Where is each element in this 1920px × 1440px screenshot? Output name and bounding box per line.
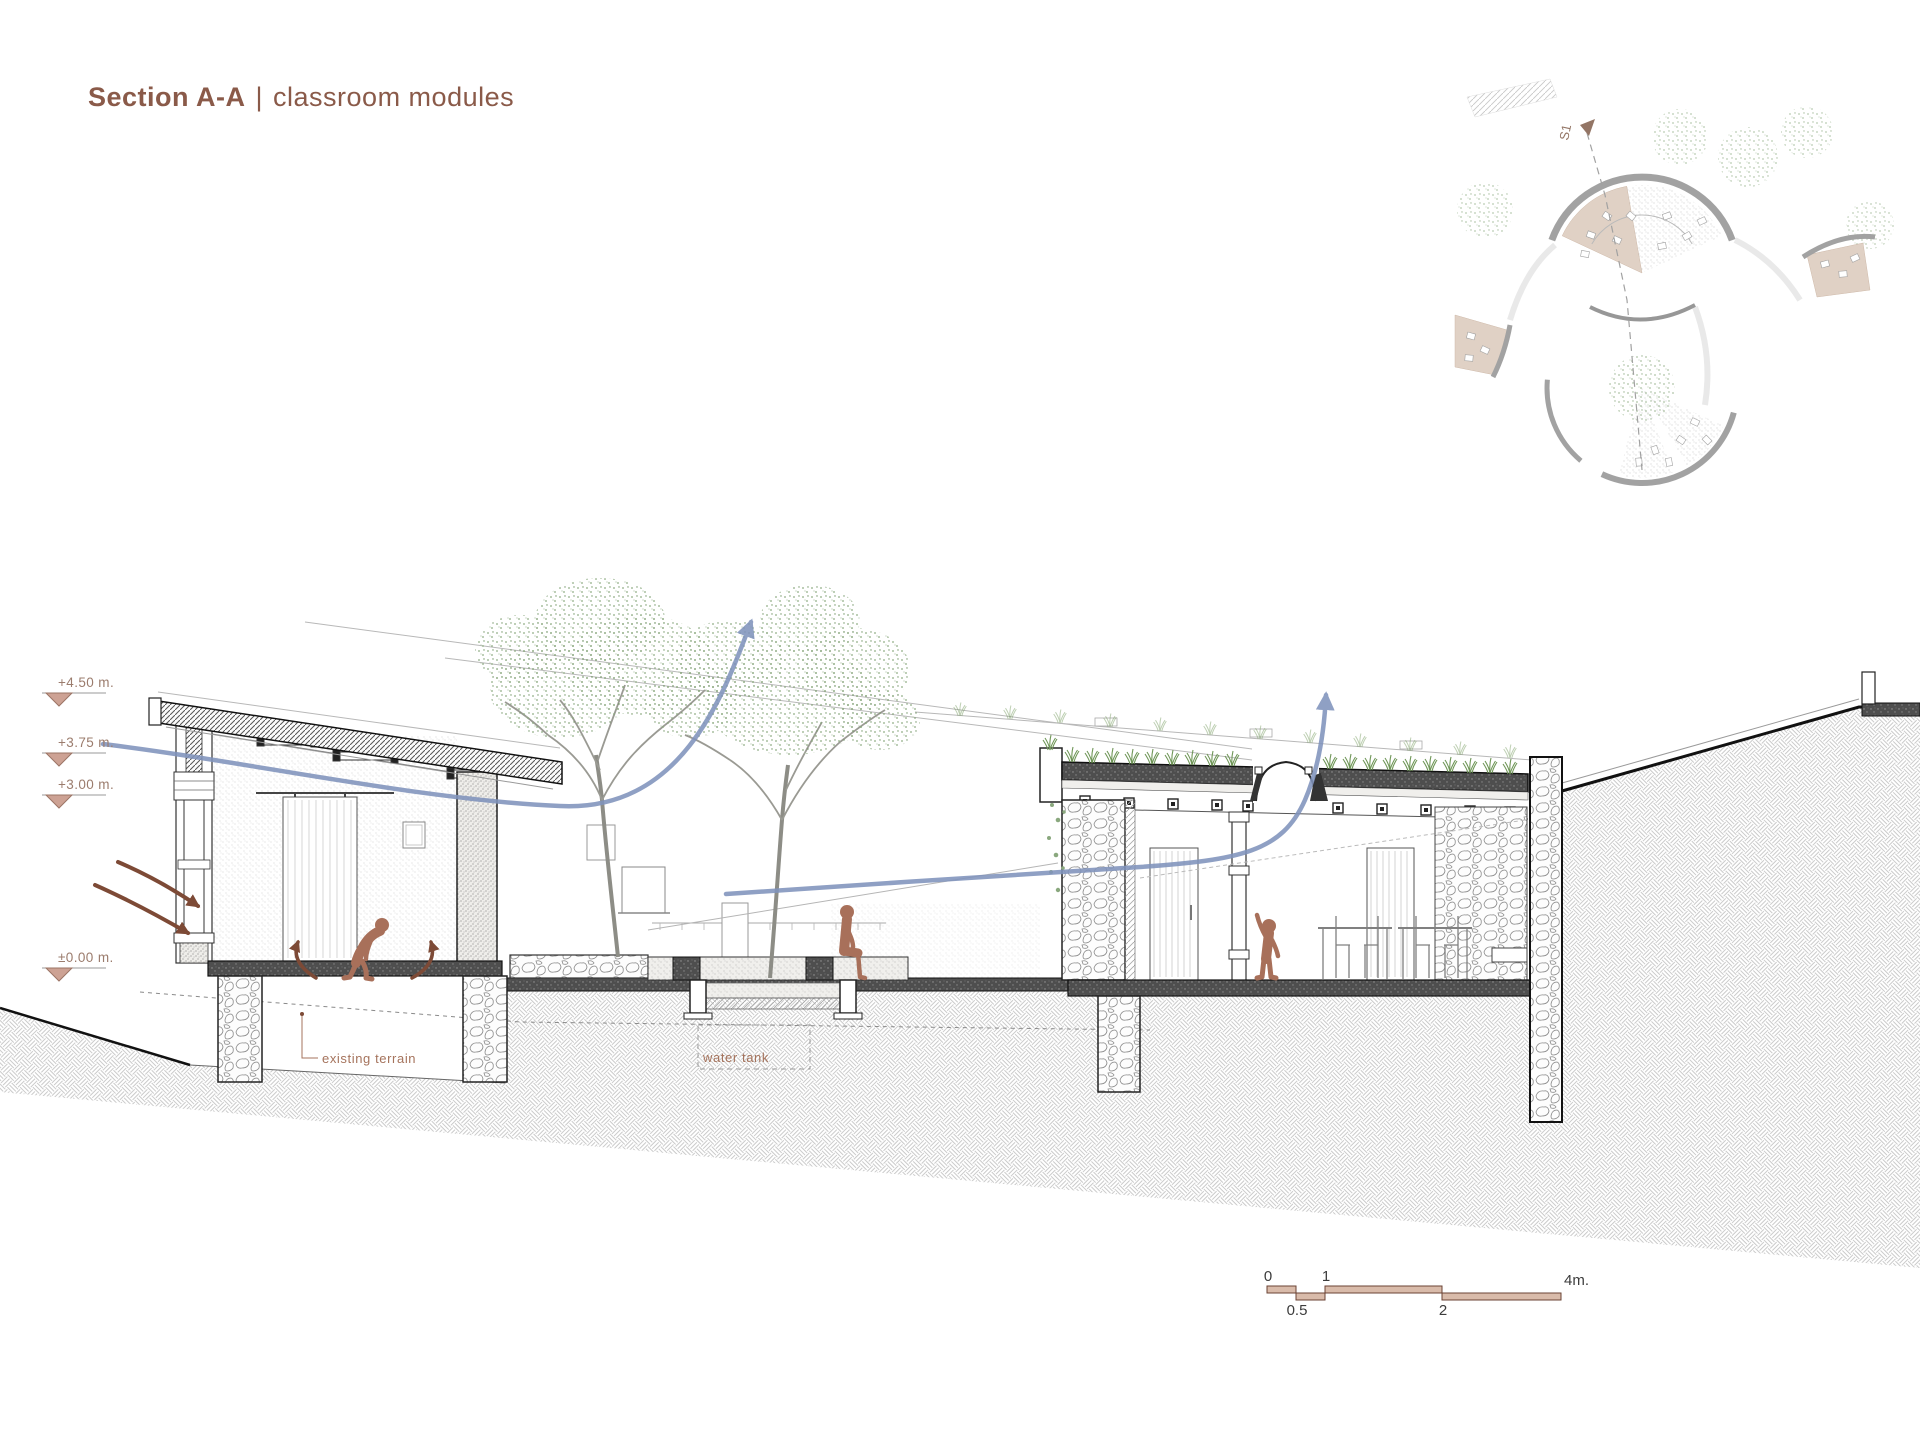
elevation-triangle-icon — [46, 693, 72, 706]
elevation-marker: +3.75 m. — [42, 735, 114, 766]
left-module-foundation-piers — [218, 976, 507, 1082]
section-a-a-drawing: S1 — [0, 0, 1920, 1440]
site-plan-left-module — [1455, 315, 1510, 377]
background-window — [622, 867, 665, 913]
scale-label-05: 0.5 — [1287, 1302, 1308, 1319]
scale-label-0: 0 — [1264, 1268, 1272, 1285]
upper-terrace-post — [1862, 672, 1875, 704]
site-plan-inset: S1 — [1455, 79, 1894, 483]
low-stone-wall — [510, 955, 648, 978]
upper-terrace-paving — [1862, 703, 1920, 716]
section-marker-triangle — [1580, 119, 1595, 136]
elevation-triangle-icon — [46, 968, 72, 981]
site-plan-road — [1467, 79, 1557, 117]
glazed-partition — [1229, 812, 1249, 980]
site-plan-upper-module — [1552, 177, 1732, 319]
floor-slab — [1068, 980, 1535, 996]
wall-niche — [1492, 948, 1527, 962]
stone-wall-left — [1062, 800, 1125, 980]
elevation-markers: +4.50 m. +3.75 m. +3.00 m. ±0.00 m. — [42, 675, 114, 981]
scale-label-4m: 4m. — [1564, 1272, 1589, 1289]
roof-parapet-block — [1040, 748, 1062, 802]
sliding-door — [283, 793, 357, 961]
green-roof-grass-back-row — [954, 703, 1517, 759]
elevation-label: +3.75 m. — [58, 735, 114, 750]
gutter — [149, 698, 161, 725]
elevation-marker: +3.00 m. — [42, 777, 114, 808]
courtyard-bench — [648, 957, 908, 980]
elevation-marker: +4.50 m. — [42, 675, 114, 706]
scale-bar: 0 1 4m. 0.5 2 — [1264, 1268, 1589, 1319]
existing-terrain-annotation: existing terrain — [300, 1012, 416, 1066]
water-tank-label: water tank — [702, 1050, 769, 1065]
elevation-label: +3.00 m. — [58, 777, 114, 792]
scale-label-1: 1 — [1322, 1268, 1330, 1285]
site-plan-center-tree — [1609, 355, 1675, 421]
right-module-foundation-pier — [1098, 996, 1140, 1092]
section-marker-label: S1 — [1556, 123, 1574, 142]
stone-wall-right — [1530, 757, 1562, 1122]
background-window — [587, 825, 615, 860]
left-wall-assembly — [174, 712, 214, 963]
interior-window — [403, 822, 425, 848]
scale-label-2: 2 — [1439, 1302, 1447, 1319]
elevation-marker: ±0.00 m. — [42, 950, 114, 981]
elevation-triangle-icon — [46, 753, 72, 766]
elevation-label: +4.50 m. — [58, 675, 114, 690]
elevation-triangle-icon — [46, 795, 72, 808]
figure-child-standing — [1257, 915, 1278, 978]
interior-door-2 — [1367, 848, 1414, 980]
existing-terrain-label: existing terrain — [322, 1051, 416, 1066]
elevation-label: ±0.00 m. — [58, 950, 114, 965]
